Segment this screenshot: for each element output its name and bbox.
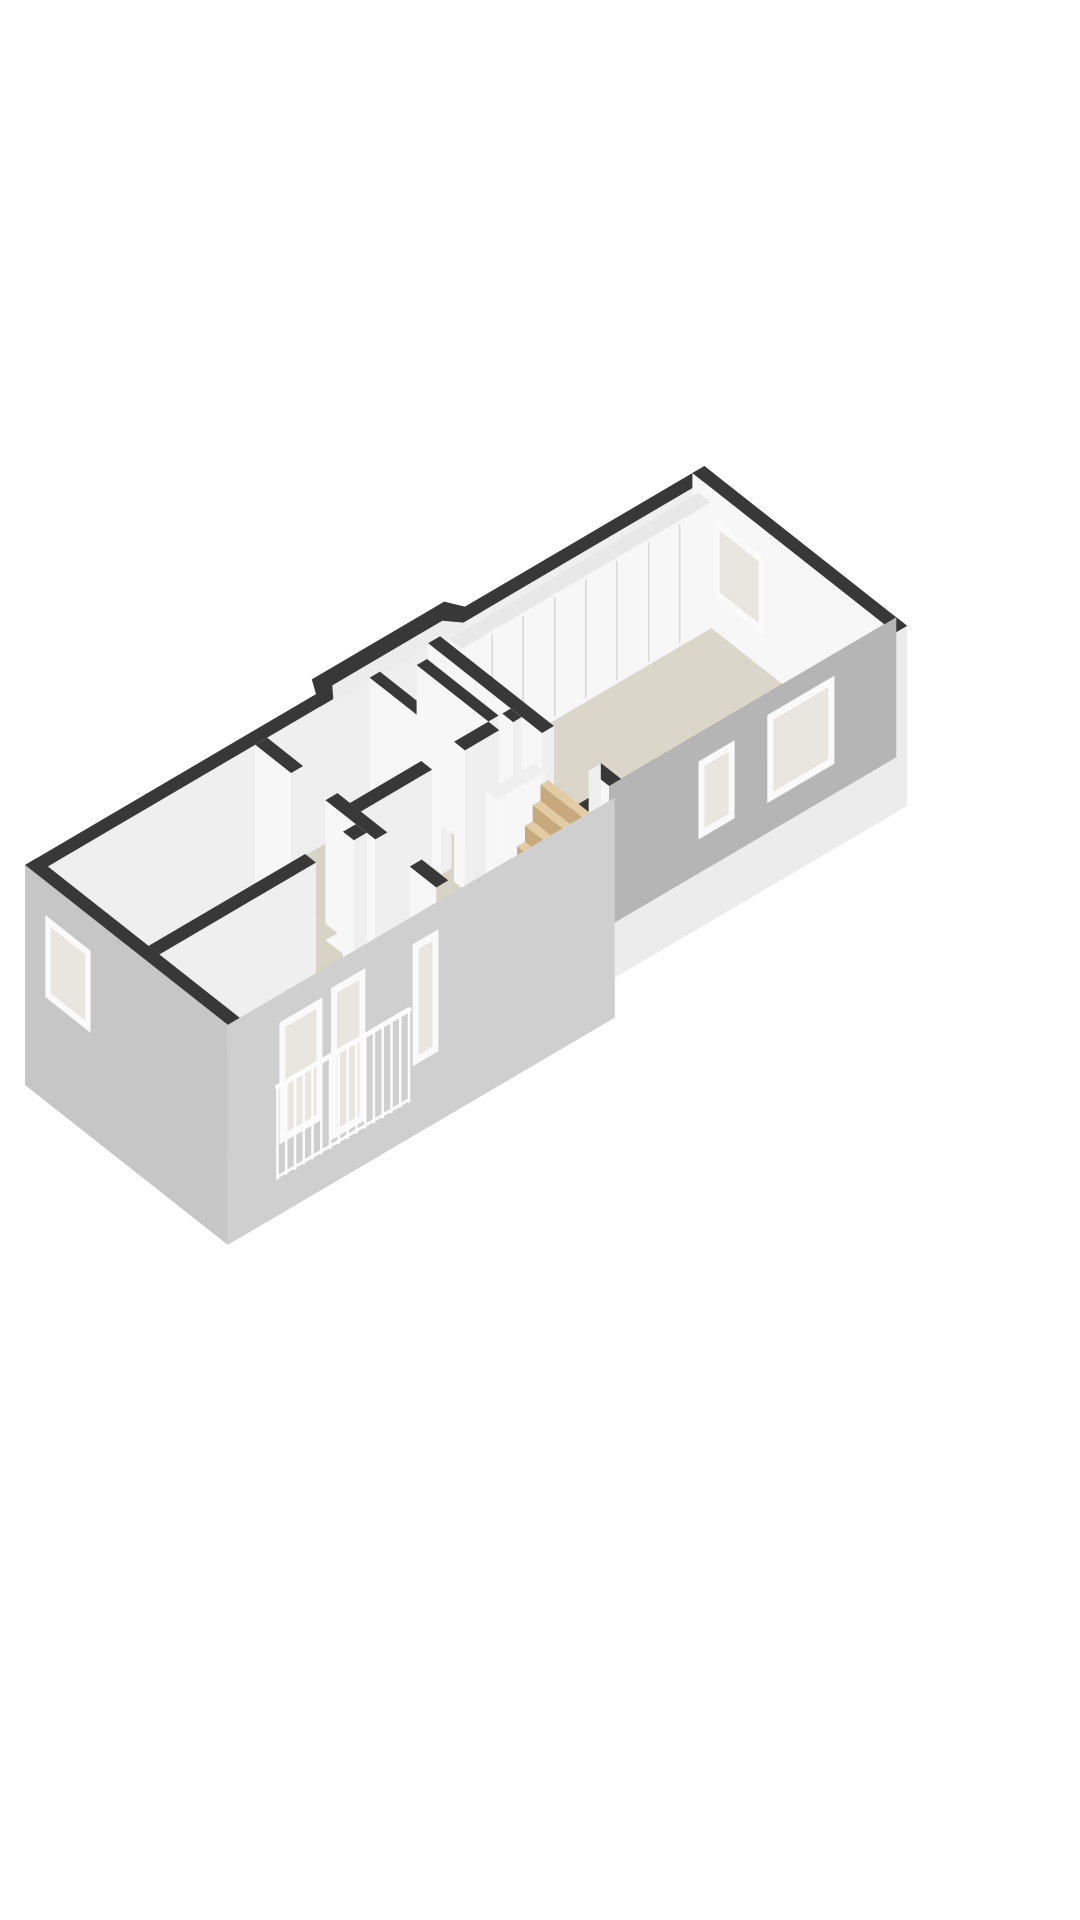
facade-window-b: [413, 929, 439, 1066]
floorplan-viewport: [0, 0, 1080, 1920]
3d-floorplan-canvas: [0, 0, 1080, 1920]
floorplan-page: { "canvas": { "width": 1080, "height": 1…: [0, 0, 1080, 1920]
